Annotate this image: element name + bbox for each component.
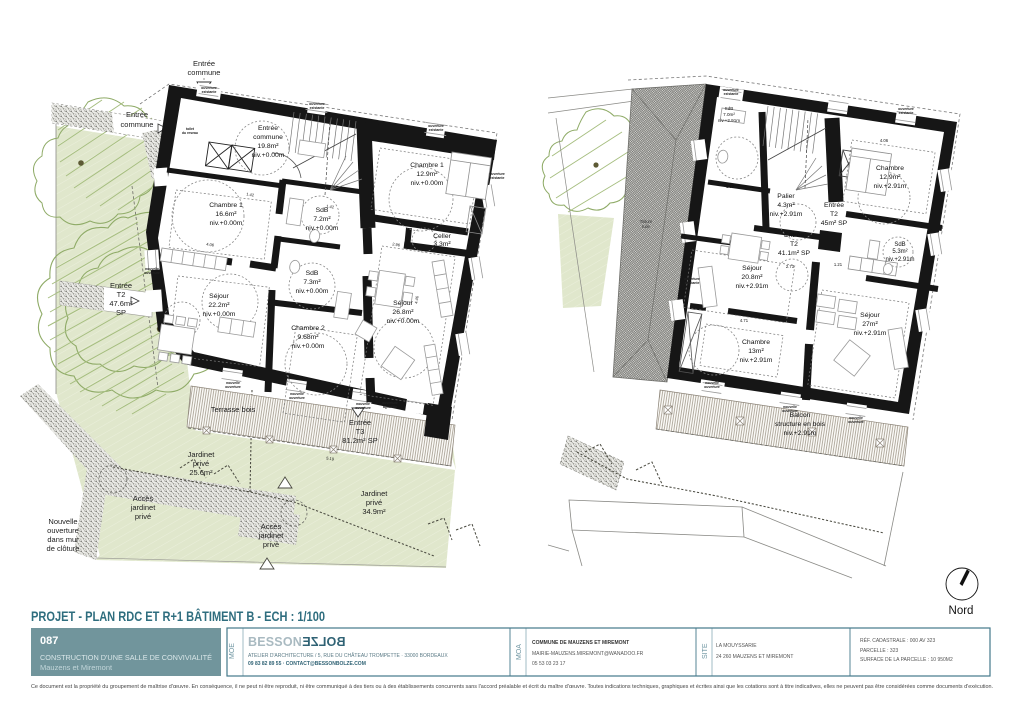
svg-text:privé: privé xyxy=(193,459,209,468)
svg-text:Mauzens et Miremont: Mauzens et Miremont xyxy=(40,663,113,672)
svg-text:privé: privé xyxy=(366,498,382,507)
svg-text:26.8m²: 26.8m² xyxy=(392,309,414,316)
svg-text:BOLZE: BOLZE xyxy=(302,635,345,649)
svg-text:niv.+2.91m: niv.+2.91m xyxy=(784,430,817,437)
svg-text:2.73: 2.73 xyxy=(786,264,795,269)
svg-text:PARCELLE : 323: PARCELLE : 323 xyxy=(860,648,898,654)
svg-text:20.8m²: 20.8m² xyxy=(741,274,763,281)
svg-text:existante: existante xyxy=(202,90,217,94)
svg-text:12.9m²: 12.9m² xyxy=(416,171,438,178)
svg-text:81.2m² SP: 81.2m² SP xyxy=(342,436,377,445)
svg-text:4.71: 4.71 xyxy=(740,318,749,323)
svg-text:5.3m²: 5.3m² xyxy=(892,249,907,255)
svg-text:privé: privé xyxy=(135,512,151,521)
svg-text:SdB: SdB xyxy=(306,270,319,277)
svg-text:Séjour: Séjour xyxy=(860,312,880,319)
svg-text:45m² SP: 45m² SP xyxy=(821,220,848,227)
svg-text:Séjour: Séjour xyxy=(393,300,413,307)
svg-text:Accès: Accès xyxy=(261,522,282,531)
svg-text:ouverture: ouverture xyxy=(848,420,864,424)
svg-text:27m²: 27m² xyxy=(862,321,878,328)
svg-text:Terrasse bois: Terrasse bois xyxy=(211,405,256,414)
svg-text:Jardinet: Jardinet xyxy=(188,450,216,459)
svg-text:Entrée: Entrée xyxy=(784,232,804,239)
svg-text:13m²: 13m² xyxy=(748,348,764,355)
svg-text:MAIRIE-MAUZENS.MIREMONT@WANADO: MAIRIE-MAUZENS.MIREMONT@WANADOO.FR xyxy=(532,651,644,657)
svg-text:PROJET - PLAN RDC ET R+1 BÂTIM: PROJET - PLAN RDC ET R+1 BÂTIMENT B - EC… xyxy=(31,609,325,624)
svg-text:ouverture: ouverture xyxy=(225,385,241,389)
svg-text:commune: commune xyxy=(121,120,154,129)
svg-text:05 53 03 23 17: 05 53 03 23 17 xyxy=(532,661,566,667)
svg-text:niv.+0.00m: niv.+0.00m xyxy=(296,288,329,295)
svg-text:Entrée: Entrée xyxy=(824,202,844,209)
svg-text:7.3m²: 7.3m² xyxy=(303,279,321,286)
svg-text:1.21: 1.21 xyxy=(834,262,843,267)
svg-text:Séjour: Séjour xyxy=(209,293,229,300)
svg-text:niv.+0.00m: niv.+0.00m xyxy=(292,343,325,350)
svg-text:niv.+0.00m: niv.+0.00m xyxy=(387,318,420,325)
svg-text:niv.+0.00m: niv.+0.00m xyxy=(306,225,339,232)
svg-text:niv.+2.91m: niv.+2.91m xyxy=(885,257,914,263)
svg-text:existante: existante xyxy=(429,128,444,132)
svg-text:Palier: Palier xyxy=(777,193,795,200)
svg-text:structure en bois: structure en bois xyxy=(775,421,826,428)
svg-text:COMMUNE DE MAUZENS ET MIREMONT: COMMUNE DE MAUZENS ET MIREMONT xyxy=(532,640,629,646)
svg-text:Balcon: Balcon xyxy=(790,412,811,419)
svg-text:SdB: SdB xyxy=(725,106,734,111)
svg-text:LA MOUYSSARIE: LA MOUYSSARIE xyxy=(716,643,757,649)
svg-text:Chambre 1: Chambre 1 xyxy=(209,202,243,209)
svg-text:Jardinet: Jardinet xyxy=(361,489,389,498)
svg-text:niv.+0.00m: niv.+0.00m xyxy=(411,180,444,187)
svg-text:existante: existante xyxy=(899,111,914,115)
svg-text:ATELIER D'ARCHITECTURE / 5, RU: ATELIER D'ARCHITECTURE / 5, RUE DU CHÂTE… xyxy=(248,652,448,659)
svg-text:existante: existante xyxy=(490,176,505,180)
svg-text:niv.+0.00m: niv.+0.00m xyxy=(203,311,236,318)
svg-text:T2: T2 xyxy=(117,290,126,299)
svg-text:22.2m²: 22.2m² xyxy=(208,302,230,309)
svg-text:09 83 82 89 55 · CONTACT@BESSO: 09 83 82 89 55 · CONTACT@BESSONBOLZE.COM xyxy=(248,661,366,667)
svg-text:Entrée: Entrée xyxy=(258,125,278,132)
svg-text:MOE: MOE xyxy=(229,643,236,659)
svg-text:ouverture: ouverture xyxy=(355,406,371,410)
svg-text:Nouvelle: Nouvelle xyxy=(48,517,77,526)
svg-text:existante: existante xyxy=(724,92,739,96)
svg-text:RÉF. CADASTRALE : 000 AV 323: RÉF. CADASTRALE : 000 AV 323 xyxy=(860,637,935,644)
svg-text:T2: T2 xyxy=(790,241,798,248)
svg-text:4.06: 4.06 xyxy=(880,138,889,143)
svg-text:Celler: Celler xyxy=(433,233,451,240)
svg-text:24 260 MAUZENS ET MIREMONT: 24 260 MAUZENS ET MIREMONT xyxy=(716,654,793,660)
svg-text:ouverture: ouverture xyxy=(289,396,305,400)
svg-text:Entrée: Entrée xyxy=(110,281,132,290)
svg-text:dans mur: dans mur xyxy=(47,535,79,544)
svg-text:BESSON: BESSON xyxy=(248,635,302,649)
svg-text:Chambre 1: Chambre 1 xyxy=(410,162,444,169)
svg-text:privé: privé xyxy=(263,540,279,549)
svg-text:niv.+2.91m: niv.+2.91m xyxy=(770,211,803,218)
svg-text:Chambre: Chambre xyxy=(876,165,904,172)
svg-text:ouverture: ouverture xyxy=(782,409,798,413)
svg-text:niv.+0.00m: niv.+0.00m xyxy=(252,152,285,159)
svg-text:T2: T2 xyxy=(830,211,838,218)
svg-text:34.9m²: 34.9m² xyxy=(362,507,386,516)
svg-text:12.9m²: 12.9m² xyxy=(879,174,901,181)
svg-text:Accès: Accès xyxy=(133,494,154,503)
svg-text:commune: commune xyxy=(253,134,283,141)
svg-text:de clôture: de clôture xyxy=(47,544,80,553)
svg-text:existante: existante xyxy=(310,106,325,110)
svg-text:niv.+2.91m: niv.+2.91m xyxy=(736,283,769,290)
svg-text:niv.+2.91m: niv.+2.91m xyxy=(874,183,907,190)
svg-text:Ce document est la propriété d: Ce document est la propriété du groupeme… xyxy=(31,684,993,690)
svg-text:Nord: Nord xyxy=(949,605,974,617)
svg-text:SURFACE DE LA PARCELLE : 10 95: SURFACE DE LA PARCELLE : 10 950M2 xyxy=(860,657,953,663)
svg-text:Entrée: Entrée xyxy=(349,418,371,427)
svg-text:41.1m² SP: 41.1m² SP xyxy=(778,250,811,257)
svg-text:087: 087 xyxy=(40,635,58,647)
svg-text:niv.+2.91m: niv.+2.91m xyxy=(854,330,887,337)
svg-text:tuile: tuile xyxy=(642,224,650,229)
svg-text:commune: commune xyxy=(188,68,221,77)
svg-text:jardinet: jardinet xyxy=(130,503,157,512)
svg-text:SITE: SITE xyxy=(702,643,709,659)
svg-text:jardinet: jardinet xyxy=(258,531,285,540)
svg-text:16.6m²: 16.6m² xyxy=(215,211,237,218)
svg-text:3.3m²: 3.3m² xyxy=(433,241,451,248)
svg-text:du reseau: du reseau xyxy=(182,131,198,135)
svg-text:Chambre: Chambre xyxy=(742,339,770,346)
svg-text:7.2m²: 7.2m² xyxy=(313,216,331,223)
svg-text:Chambre 2: Chambre 2 xyxy=(291,325,325,332)
svg-text:niv.+0.00m: niv.+0.00m xyxy=(210,220,243,227)
svg-text:25.6m²: 25.6m² xyxy=(189,468,213,477)
svg-text:ouverture: ouverture xyxy=(144,271,160,275)
svg-text:MOA: MOA xyxy=(516,644,523,660)
svg-text:T3: T3 xyxy=(356,427,365,436)
svg-text:SdB: SdB xyxy=(894,242,905,248)
svg-text:niv.+2.91m: niv.+2.91m xyxy=(740,357,773,364)
svg-text:4.3m²: 4.3m² xyxy=(777,202,795,209)
svg-text:ouverture: ouverture xyxy=(704,385,720,389)
svg-text:9.68m²: 9.68m² xyxy=(297,334,319,341)
svg-text:Séjour: Séjour xyxy=(742,265,762,272)
svg-text:47.6m²: 47.6m² xyxy=(109,299,133,308)
svg-text:1.92: 1.92 xyxy=(726,184,735,189)
svg-text:Entrée: Entrée xyxy=(126,110,148,119)
svg-text:SP: SP xyxy=(116,308,126,317)
svg-text:niv.+2.91m: niv.+2.91m xyxy=(718,118,740,123)
svg-text:ouverture: ouverture xyxy=(47,526,79,535)
svg-text:7.0m²: 7.0m² xyxy=(723,112,735,117)
svg-text:Entrée: Entrée xyxy=(193,59,215,68)
svg-text:19.8m²: 19.8m² xyxy=(257,143,279,150)
svg-text:existante: existante xyxy=(685,281,700,285)
svg-text:CONSTRUCTION D'UNE SALLE DE CO: CONSTRUCTION D'UNE SALLE DE CONVIVIALITÉ xyxy=(40,653,212,662)
svg-text:agrandie: agrandie xyxy=(383,405,397,409)
